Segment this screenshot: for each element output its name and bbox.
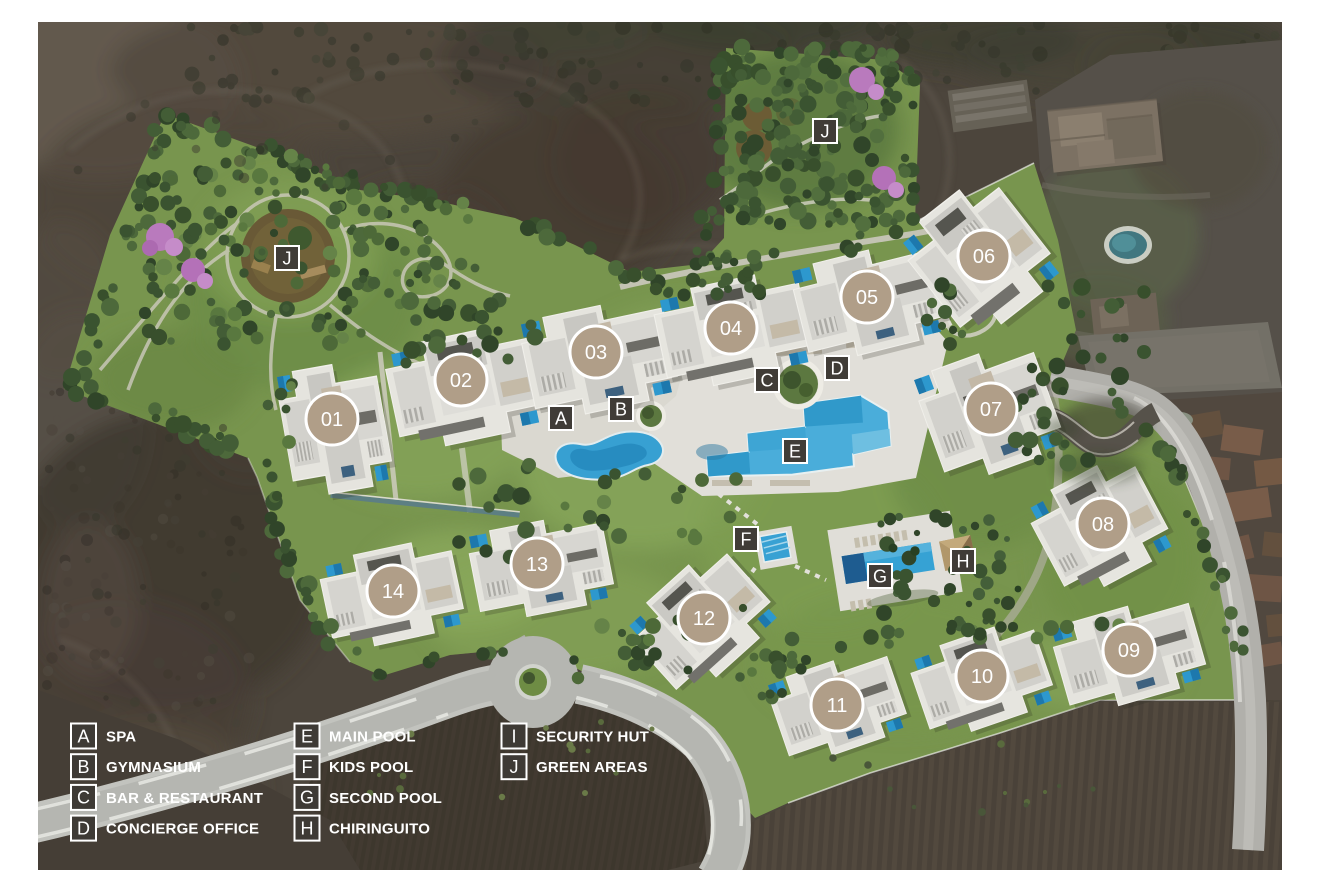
- svg-text:BAR & RESTAURANT: BAR & RESTAURANT: [106, 790, 263, 807]
- svg-text:A: A: [555, 408, 567, 428]
- svg-text:MAIN POOL: MAIN POOL: [329, 729, 416, 746]
- svg-text:02: 02: [450, 370, 472, 392]
- svg-text:G: G: [300, 788, 314, 808]
- svg-text:H: H: [957, 551, 970, 571]
- svg-text:A: A: [77, 726, 89, 746]
- svg-text:F: F: [302, 757, 313, 777]
- svg-text:GREEN AREAS: GREEN AREAS: [536, 759, 648, 776]
- svg-text:I: I: [511, 726, 516, 746]
- svg-text:07: 07: [980, 399, 1002, 421]
- svg-text:13: 13: [526, 554, 548, 576]
- svg-text:H: H: [301, 818, 314, 838]
- svg-text:SECURITY HUT: SECURITY HUT: [536, 729, 649, 746]
- svg-text:03: 03: [585, 342, 607, 364]
- svg-text:F: F: [741, 529, 752, 549]
- svg-text:C: C: [761, 370, 774, 390]
- svg-text:J: J: [283, 248, 292, 268]
- svg-text:10: 10: [971, 666, 993, 688]
- svg-text:D: D: [831, 358, 844, 378]
- svg-text:06: 06: [973, 246, 995, 268]
- svg-text:CONCIERGE OFFICE: CONCIERGE OFFICE: [106, 821, 259, 838]
- svg-text:04: 04: [720, 318, 742, 340]
- svg-text:08: 08: [1092, 514, 1114, 536]
- svg-text:B: B: [615, 399, 627, 419]
- svg-text:J: J: [821, 121, 830, 141]
- svg-text:C: C: [77, 788, 90, 808]
- svg-text:GYMNASIUM: GYMNASIUM: [106, 759, 201, 776]
- svg-text:SECOND POOL: SECOND POOL: [329, 790, 442, 807]
- svg-text:01: 01: [321, 409, 343, 431]
- svg-text:SPA: SPA: [106, 729, 136, 746]
- svg-text:B: B: [77, 757, 89, 777]
- svg-text:11: 11: [827, 695, 848, 717]
- svg-text:05: 05: [856, 287, 878, 309]
- svg-text:12: 12: [693, 608, 715, 630]
- svg-text:CHIRINGUITO: CHIRINGUITO: [329, 821, 430, 838]
- svg-text:G: G: [873, 566, 887, 586]
- svg-text:KIDS POOL: KIDS POOL: [329, 759, 413, 776]
- svg-text:J: J: [510, 757, 519, 777]
- svg-text:09: 09: [1118, 640, 1140, 662]
- svg-text:E: E: [301, 726, 313, 746]
- svg-text:D: D: [77, 818, 90, 838]
- svg-text:E: E: [789, 441, 801, 461]
- svg-text:14: 14: [382, 581, 404, 603]
